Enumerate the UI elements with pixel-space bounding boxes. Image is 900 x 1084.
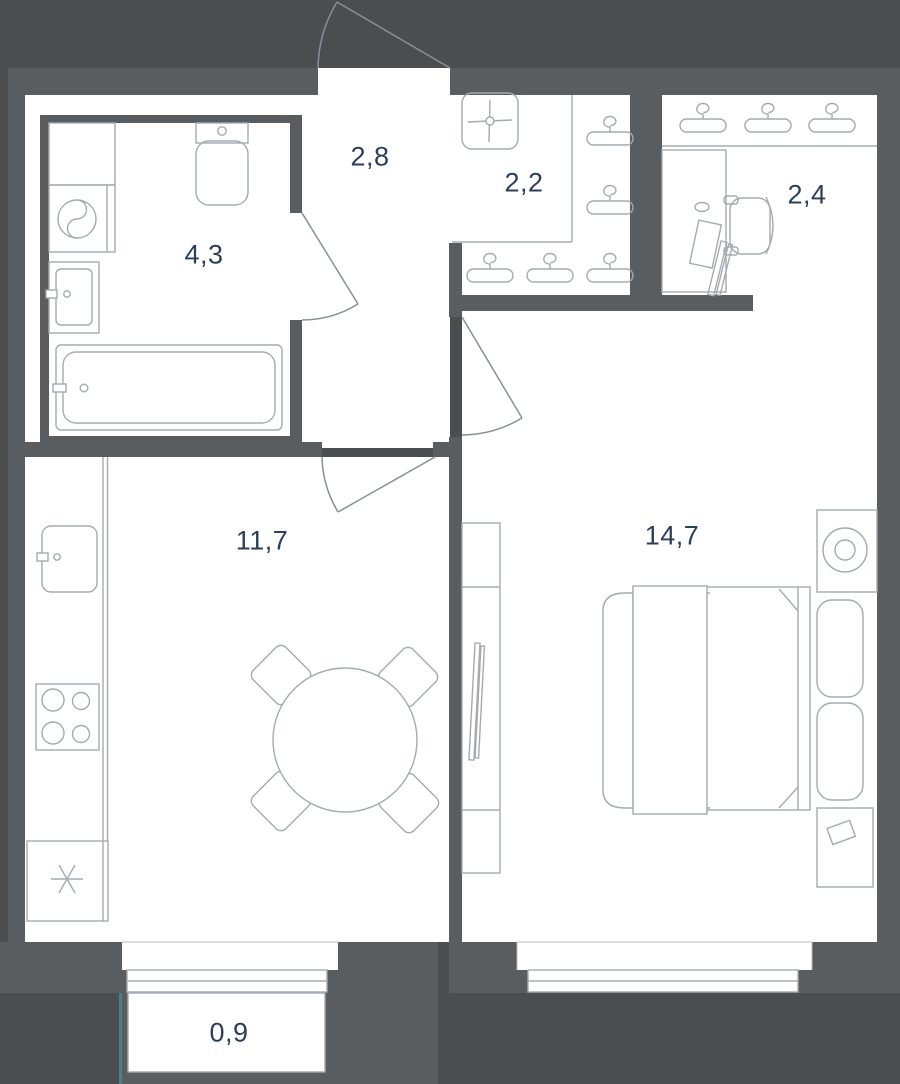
room-area-wardrobe: 2,2 [504,168,543,199]
dining-set [248,642,441,835]
entrance-door-arc [318,2,450,68]
room-area-kitchen: 11,7 [236,526,289,557]
floor-plan-drawing [0,0,900,1084]
room-area-workspace: 2,4 [787,180,826,211]
room-area-bathroom: 4,3 [184,240,223,271]
bedroom-window [517,942,812,992]
entrance-opening [318,68,450,95]
room-floor-hallway [302,68,450,448]
room-area-hallway: 2,8 [350,142,389,173]
room-floor-wardrobe [450,95,630,305]
room-area-bedroom: 14,7 [645,521,700,552]
dining-table-icon [273,668,417,812]
floor-plan: 4,3 2,8 2,2 2,4 11,7 14,7 0,9 [0,0,900,1084]
blanket-fold [633,586,707,814]
room-area-balcony: 0,9 [209,1018,248,1049]
kitchen-balcony-window [122,942,338,992]
balcony-accent-line [119,993,122,1084]
